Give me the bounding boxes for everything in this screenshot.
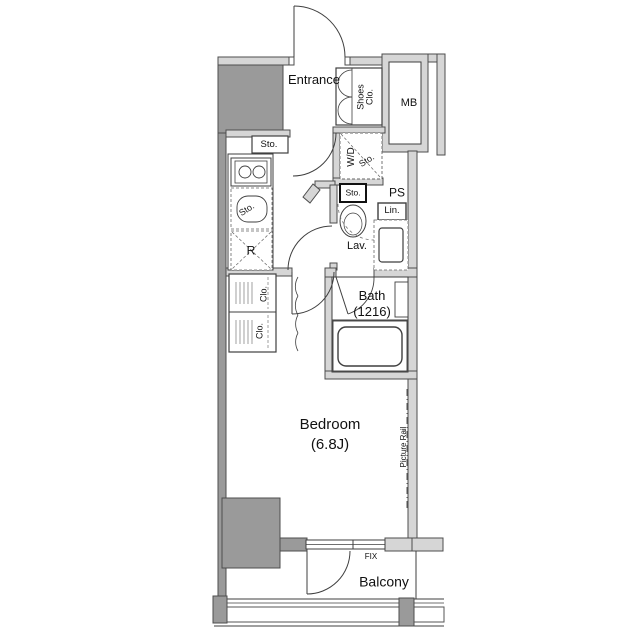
floor-plan-drawing [0,0,640,640]
top-left-pillar [218,57,283,133]
bath-counter [395,282,408,317]
bottom-left-pillar [222,498,280,568]
entrance-label: Entrance [288,73,340,87]
closet-bifold-2 [295,296,298,315]
picture-rail-label: Picture Rail [400,427,408,468]
lav-left-wall-upper [330,185,337,223]
bathtub [338,327,402,366]
entrance-door-swing [294,6,345,57]
closet-top-label: Clo. [259,286,268,302]
bedroom-size-label: (6.8J) [311,437,349,453]
washer-dryer-label: W/D [347,147,358,166]
lavatory-label: Lav. [347,241,367,253]
balcony-window [306,540,385,549]
fix-window-label: FIX [365,553,377,561]
hall-door-swing [293,133,336,176]
door-jamb-left [289,57,294,65]
wash-basin [379,228,403,262]
balcony-door-swing [307,551,350,594]
neighbor-wall [437,54,445,155]
hall-storage-label: Sto. [261,140,278,150]
shoes-closet-label-line2: Clo. [366,84,375,110]
balcony-label: Balcony [359,575,409,590]
bottom-wall-right-segment [385,538,412,551]
vanity [374,220,408,270]
wd-left-wall [333,133,340,185]
bottom-wall-right-stub [412,538,443,551]
toilet-shelf-label: Sto. [345,189,360,198]
lav-door-swing [288,226,332,270]
closet-bifold-4 [296,333,298,351]
bath-size-label: (1216) [353,305,391,319]
meter-box-label: MB [401,98,418,110]
linen-label: Lin. [384,206,399,216]
railing-post-left [213,596,227,623]
railing-post-right [399,598,414,626]
floor-plan: Entrance Shoes Clo. MB Sto. W/D Sto. Sto… [0,0,640,640]
bath-label: Bath [359,289,386,303]
fridge-label: R [247,245,256,258]
closet-bifold-3 [296,315,298,333]
shoesclo-bottom-wall [333,127,385,133]
top-wall-left [218,57,293,65]
top-wall-right [345,57,385,65]
bedroom-label: Bedroom [300,417,361,433]
closet-bottom-label: Clo. [255,323,264,339]
toilet-bowl [340,205,366,237]
pipe-space-label: PS [389,187,405,200]
door-jamb-right [345,57,350,65]
closet-bifold-1 [295,277,298,296]
right-wall [408,151,417,540]
shoes-closet-label: Shoes Clo. [357,84,376,110]
bottom-wall-left-segment [280,538,307,551]
